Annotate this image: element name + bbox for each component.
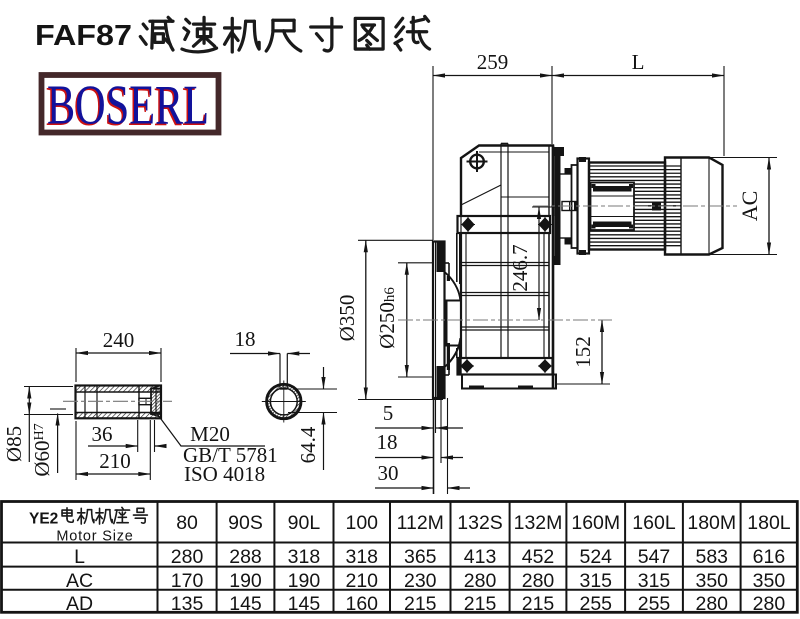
svg-text:280: 280 — [464, 570, 497, 592]
svg-text:160: 160 — [345, 593, 378, 614]
svg-text:255: 255 — [638, 593, 671, 614]
svg-text:190: 190 — [229, 570, 262, 592]
svg-text:190: 190 — [288, 570, 321, 592]
svg-text:145: 145 — [229, 593, 262, 614]
svg-text:583: 583 — [695, 546, 728, 568]
svg-text:Motor Size: Motor Size — [56, 529, 133, 545]
svg-text:215: 215 — [404, 593, 437, 614]
svg-text:413: 413 — [464, 546, 497, 568]
svg-text:100: 100 — [345, 512, 378, 534]
svg-text:547: 547 — [638, 546, 671, 568]
svg-text:18: 18 — [235, 327, 256, 351]
svg-text:318: 318 — [288, 546, 321, 568]
svg-text:Ø85: Ø85 — [2, 426, 26, 462]
svg-text:Ø350: Ø350 — [335, 295, 359, 342]
svg-text:AC: AC — [737, 191, 762, 222]
svg-text:215: 215 — [464, 593, 497, 614]
svg-text:90S: 90S — [228, 512, 263, 534]
svg-text:215: 215 — [522, 593, 555, 614]
svg-text:255: 255 — [579, 593, 612, 614]
svg-text:315: 315 — [579, 570, 612, 592]
svg-text:160M: 160M — [571, 512, 620, 534]
svg-text:80: 80 — [176, 512, 198, 534]
svg-text:318: 318 — [345, 546, 378, 568]
svg-text:64.4: 64.4 — [296, 426, 320, 463]
svg-text:132M: 132M — [514, 512, 563, 534]
svg-text:240: 240 — [103, 328, 135, 352]
svg-text:280: 280 — [522, 570, 555, 592]
svg-text:315: 315 — [638, 570, 671, 592]
svg-text:BOSERL: BOSERL — [47, 75, 209, 137]
svg-text:350: 350 — [695, 570, 728, 592]
svg-text:90L: 90L — [288, 512, 321, 534]
svg-text:350: 350 — [753, 570, 786, 592]
svg-text:AD: AD — [66, 593, 93, 614]
svg-text:210: 210 — [99, 449, 131, 473]
svg-text:230: 230 — [404, 570, 437, 592]
svg-text:36: 36 — [92, 422, 113, 446]
svg-text:L: L — [632, 50, 645, 74]
svg-text:YE2: YE2 — [29, 511, 58, 528]
svg-text:180M: 180M — [687, 512, 736, 534]
svg-text:AC: AC — [66, 570, 93, 592]
svg-text:132S: 132S — [457, 512, 503, 534]
svg-text:280: 280 — [171, 546, 204, 568]
svg-text:280: 280 — [753, 593, 786, 614]
svg-text:616: 616 — [753, 546, 786, 568]
svg-text:170: 170 — [171, 570, 204, 592]
svg-text:L: L — [74, 546, 85, 568]
svg-text:30: 30 — [378, 461, 399, 485]
svg-text:210: 210 — [345, 570, 378, 592]
svg-text:ISO 4018: ISO 4018 — [184, 462, 265, 486]
svg-text:180L: 180L — [747, 512, 791, 534]
svg-text:18: 18 — [377, 430, 398, 454]
svg-text:524: 524 — [579, 546, 612, 568]
svg-text:259: 259 — [477, 50, 509, 74]
svg-text:5: 5 — [383, 401, 394, 425]
svg-text:152: 152 — [571, 336, 595, 368]
svg-text:452: 452 — [522, 546, 555, 568]
svg-text:365: 365 — [404, 546, 437, 568]
svg-text:288: 288 — [229, 546, 262, 568]
svg-text:246.7: 246.7 — [508, 244, 532, 291]
svg-text:145: 145 — [288, 593, 321, 614]
svg-text:112M: 112M — [397, 512, 444, 534]
svg-text:280: 280 — [695, 593, 728, 614]
svg-text:160L: 160L — [632, 512, 676, 534]
svg-text:FAF87: FAF87 — [35, 20, 132, 52]
svg-text:135: 135 — [171, 593, 204, 614]
